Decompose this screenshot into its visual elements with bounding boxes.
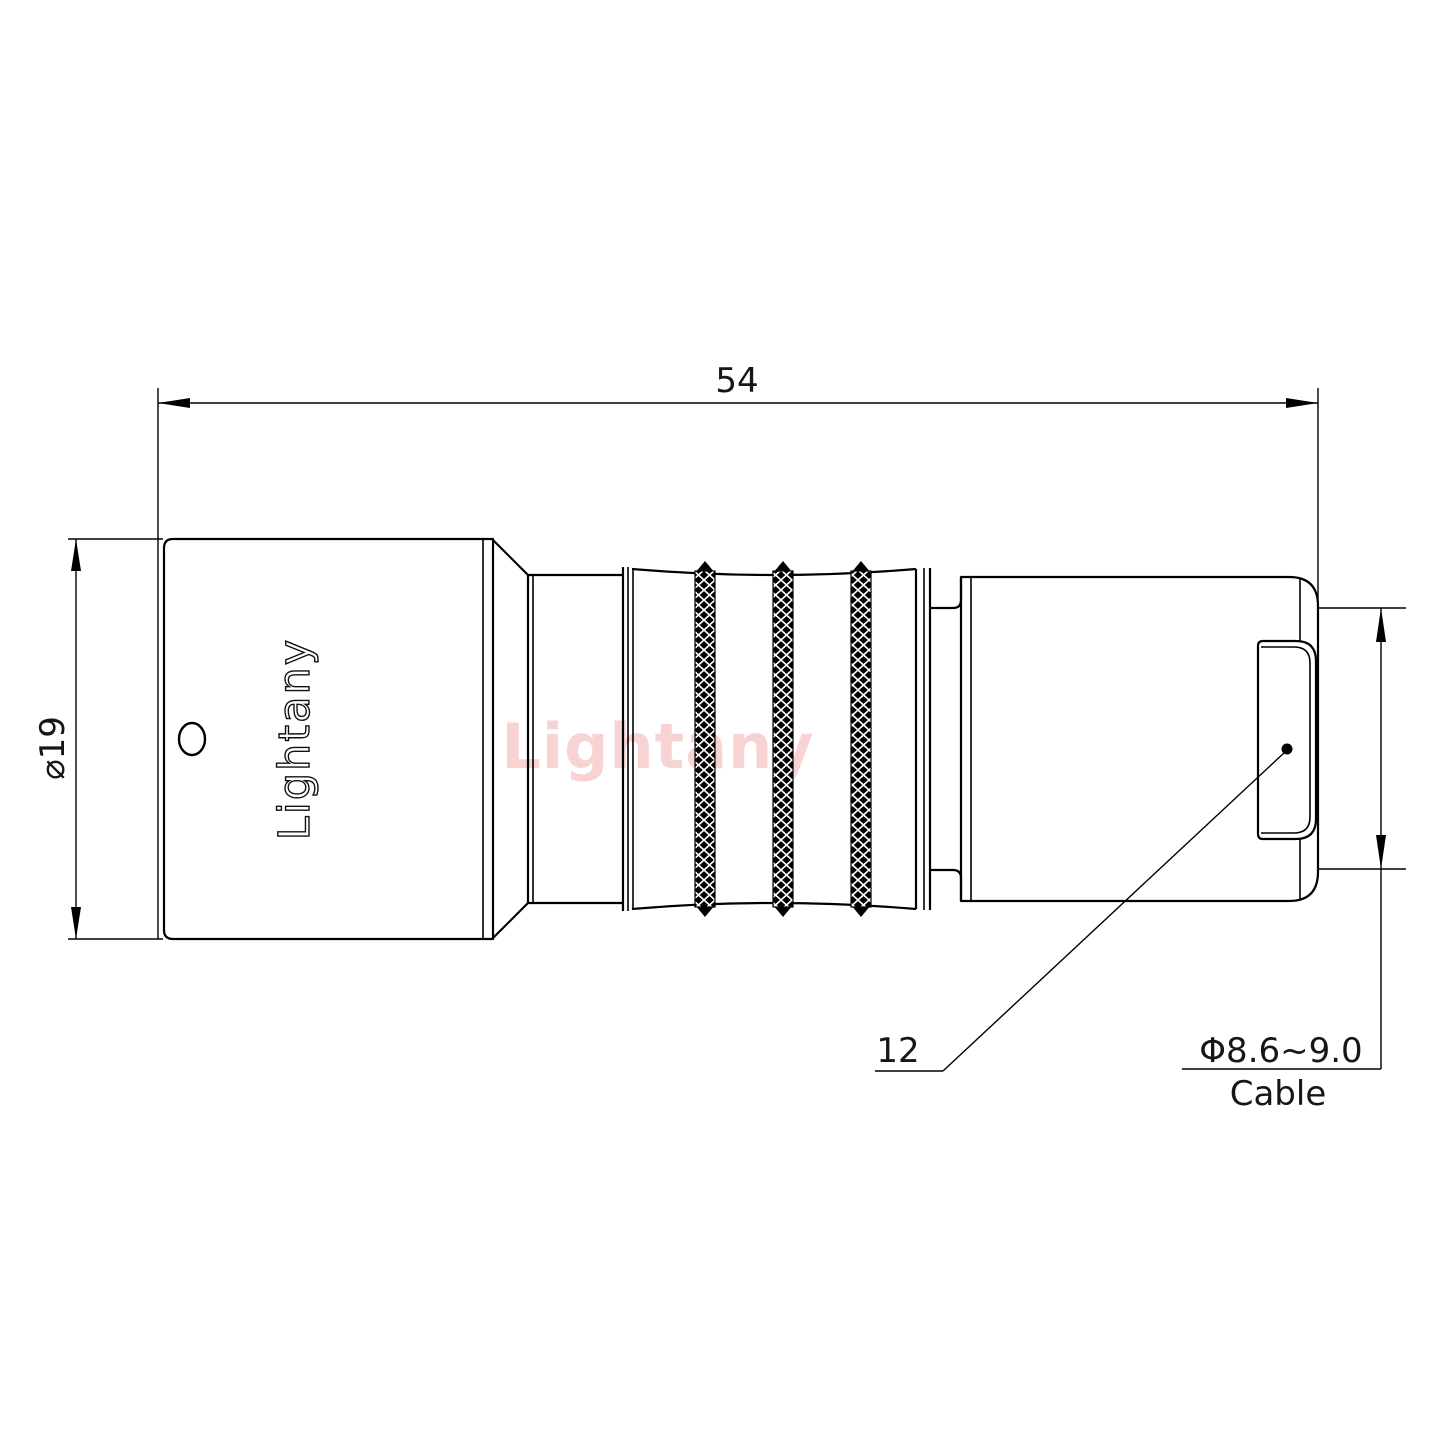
dim-overall-length-label: 54 bbox=[715, 361, 758, 401]
cable-diameter-label: Φ8.6~9.0 bbox=[1199, 1031, 1362, 1071]
dimension-body-diameter: ⌀19 bbox=[33, 539, 163, 939]
neck-top bbox=[930, 577, 961, 608]
arrow-bottom bbox=[71, 907, 81, 939]
dimension-rear-12: 12 bbox=[875, 744, 1293, 1072]
arrow-bottom bbox=[1376, 835, 1386, 869]
dimension-overall-length: 54 bbox=[158, 361, 1318, 939]
arrow-right bbox=[1286, 398, 1318, 408]
leader-line bbox=[943, 752, 1285, 1071]
technical-drawing-canvas: Lightany bbox=[0, 0, 1440, 1440]
front-body bbox=[164, 539, 493, 939]
dim-rear-label: 12 bbox=[876, 1031, 919, 1071]
chamfer-top bbox=[493, 540, 528, 575]
dim-body-diameter-label: ⌀19 bbox=[33, 716, 73, 780]
knurl-band bbox=[851, 561, 871, 917]
arrow-top bbox=[71, 539, 81, 571]
cable-bushing bbox=[1258, 641, 1316, 839]
watermark-text: Lightany bbox=[501, 710, 814, 783]
body-logo-text: Lightany bbox=[270, 638, 320, 840]
arrow-top bbox=[1376, 608, 1386, 642]
cable-word-label: Cable bbox=[1230, 1074, 1327, 1114]
knurl-band bbox=[773, 561, 793, 917]
neck-bottom bbox=[930, 870, 961, 901]
connector-dimension-drawing: Lightany bbox=[0, 0, 1440, 1440]
arrow-left bbox=[158, 398, 190, 408]
chamfer-bottom bbox=[493, 903, 528, 938]
body-hole bbox=[179, 723, 205, 755]
knurl-band bbox=[695, 561, 715, 917]
